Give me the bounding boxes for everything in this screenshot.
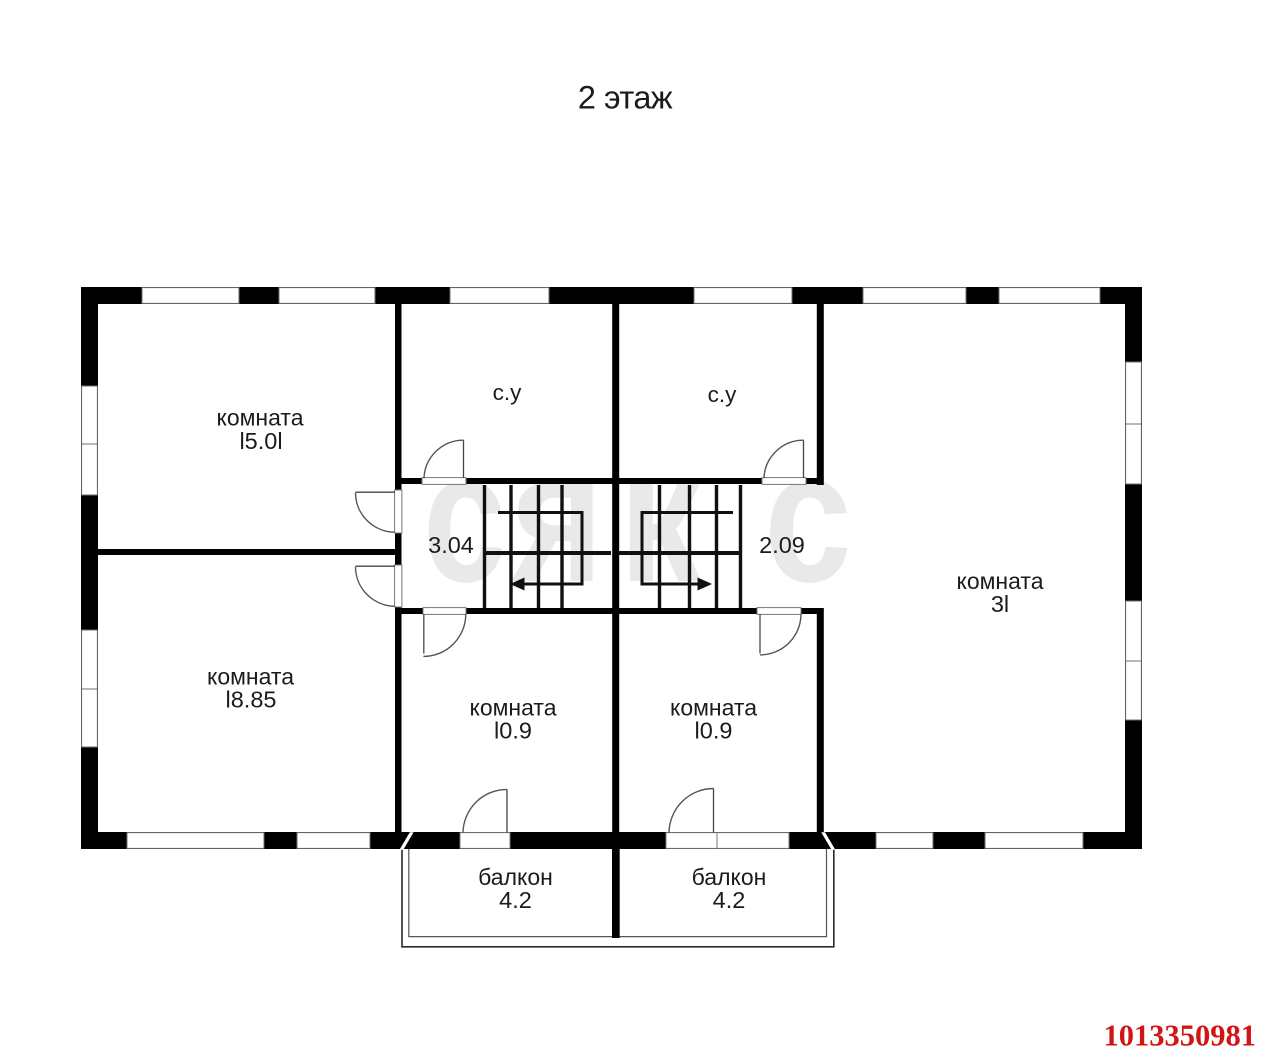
svg-text:l8.85: l8.85 (226, 687, 277, 713)
svg-text:4.2: 4.2 (499, 887, 532, 913)
svg-text:l0.9: l0.9 (695, 718, 733, 744)
svg-text:l0.9: l0.9 (494, 718, 532, 744)
svg-text:комната: комната (217, 405, 304, 431)
svg-text:2.09: 2.09 (759, 532, 805, 558)
svg-text:3.04: 3.04 (428, 532, 474, 558)
svg-text:4.2: 4.2 (713, 887, 746, 913)
svg-text:с: с (764, 411, 852, 621)
svg-text:l5.0l: l5.0l (239, 428, 282, 454)
svg-text:2 этаж: 2 этаж (578, 80, 673, 116)
svg-text:с.у: с.у (708, 382, 738, 407)
svg-text:1013350981: 1013350981 (1104, 1019, 1257, 1053)
svg-text:с: с (423, 412, 507, 622)
svg-text:3l: 3l (991, 591, 1009, 617)
svg-text:с.у: с.у (493, 380, 523, 405)
